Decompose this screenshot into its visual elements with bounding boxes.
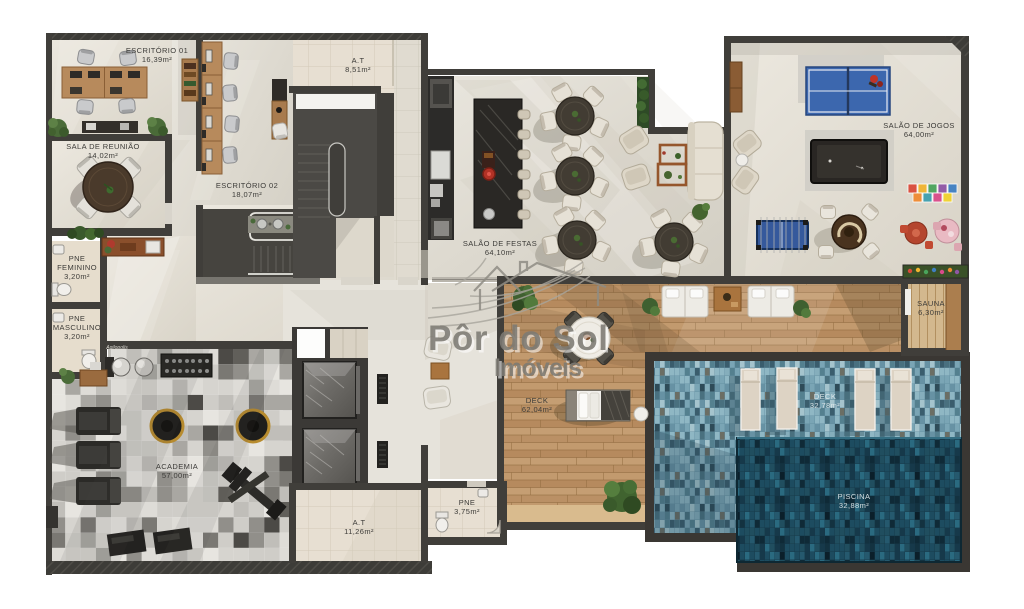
svg-text:PNE: PNE (69, 314, 86, 323)
svg-text:ESCRITÓRIO 01: ESCRITÓRIO 01 (126, 46, 188, 55)
svg-text:Pôr do Sol: Pôr do Sol (428, 319, 608, 358)
svg-text:18,07m²: 18,07m² (232, 190, 262, 199)
svg-text:62,04m²: 62,04m² (522, 405, 552, 414)
svg-text:FEMININO: FEMININO (57, 263, 97, 272)
svg-text:57,00m²: 57,00m² (162, 471, 192, 480)
svg-text:SAUNA: SAUNA (917, 299, 945, 308)
svg-text:PISCINA: PISCINA (838, 492, 871, 501)
svg-text:A.T: A.T (353, 518, 366, 527)
svg-text:SALÃO DE JOGOS: SALÃO DE JOGOS (883, 121, 954, 130)
svg-text:3,20m²: 3,20m² (64, 272, 90, 281)
svg-text:ACADEMIA: ACADEMIA (156, 462, 198, 471)
svg-text:PNE: PNE (69, 254, 86, 263)
svg-text:DECK: DECK (526, 396, 548, 405)
svg-text:16,39m²: 16,39m² (142, 55, 172, 64)
svg-text:SALÃO DE FESTAS: SALÃO DE FESTAS (463, 239, 537, 248)
svg-text:64,00m²: 64,00m² (904, 130, 934, 139)
svg-text:6,30m²: 6,30m² (918, 308, 944, 317)
svg-text:MASCULINO: MASCULINO (53, 323, 101, 332)
svg-text:3,20m²: 3,20m² (64, 332, 90, 341)
svg-text:64,10m²: 64,10m² (485, 248, 515, 257)
svg-text:A.T: A.T (352, 56, 365, 65)
svg-text:32,88m²: 32,88m² (839, 501, 869, 510)
svg-text:ESCRITÓRIO 02: ESCRITÓRIO 02 (216, 181, 278, 190)
svg-text:32,78m²: 32,78m² (810, 401, 840, 410)
svg-text:14,02m²: 14,02m² (88, 151, 118, 160)
svg-text:3,75m²: 3,75m² (454, 507, 480, 516)
svg-text:Imóveis: Imóveis (494, 354, 582, 382)
svg-text:DECK: DECK (814, 392, 836, 401)
svg-text:SALA DE REUNIÃO: SALA DE REUNIÃO (66, 142, 140, 151)
svg-text:Agilopolis: Agilopolis (105, 345, 128, 351)
svg-text:PNE: PNE (459, 498, 476, 507)
svg-text:11,26m²: 11,26m² (344, 527, 374, 536)
svg-text:8,51m²: 8,51m² (345, 65, 371, 74)
